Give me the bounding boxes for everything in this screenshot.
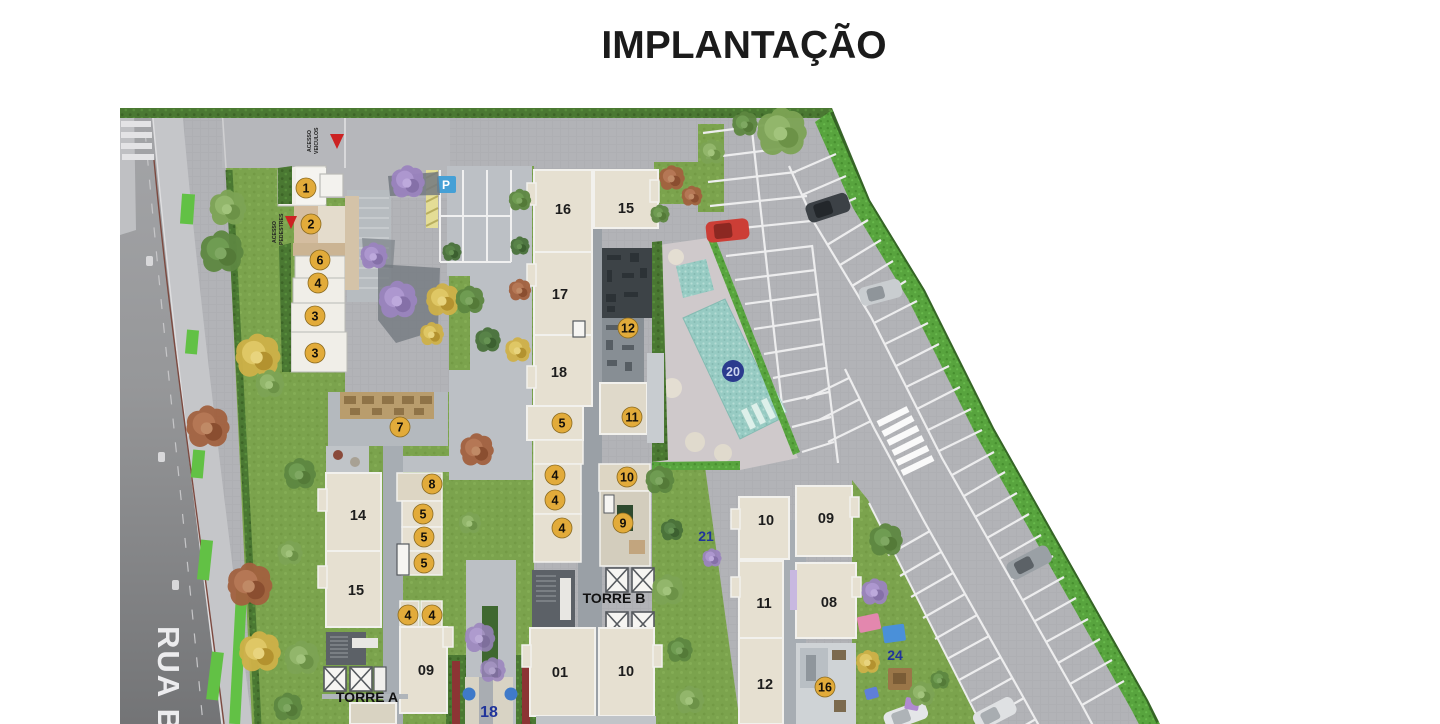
svg-text:6: 6 [317, 254, 324, 268]
svg-text:5: 5 [420, 508, 427, 522]
svg-text:15: 15 [348, 583, 364, 599]
svg-text:15: 15 [618, 201, 634, 217]
svg-text:TORRE B: TORRE B [583, 590, 646, 606]
svg-text:7: 7 [397, 421, 404, 435]
svg-text:4: 4 [552, 494, 559, 508]
svg-text:10: 10 [618, 664, 634, 680]
svg-text:09: 09 [818, 511, 834, 527]
svg-text:18: 18 [551, 365, 567, 381]
svg-text:20: 20 [726, 365, 740, 379]
svg-text:4: 4 [552, 469, 559, 483]
svg-text:10: 10 [620, 471, 634, 485]
svg-text:ACESSO: ACESSO [307, 130, 313, 152]
svg-text:16: 16 [818, 681, 832, 695]
svg-text:TORRE A: TORRE A [336, 689, 398, 705]
svg-text:P: P [442, 178, 450, 192]
svg-text:24: 24 [887, 647, 903, 663]
svg-text:16: 16 [555, 202, 571, 218]
svg-text:08: 08 [821, 595, 837, 611]
svg-text:10: 10 [758, 513, 774, 529]
svg-text:3: 3 [312, 347, 319, 361]
svg-text:18: 18 [480, 704, 498, 721]
svg-text:3: 3 [312, 310, 319, 324]
svg-text:2: 2 [308, 218, 315, 232]
svg-text:9: 9 [620, 517, 627, 531]
svg-text:11: 11 [756, 596, 771, 612]
svg-text:1: 1 [303, 182, 310, 196]
svg-text:IMPLANTAÇÃO: IMPLANTAÇÃO [601, 23, 886, 67]
svg-text:12: 12 [757, 677, 773, 693]
svg-text:14: 14 [350, 508, 366, 524]
svg-text:09: 09 [418, 663, 434, 679]
svg-text:12: 12 [621, 322, 635, 336]
svg-text:4: 4 [559, 522, 566, 536]
svg-text:4: 4 [429, 609, 436, 623]
svg-text:RUA B: RUA B [151, 626, 186, 724]
svg-text:5: 5 [559, 417, 566, 431]
svg-text:11: 11 [625, 411, 638, 425]
svg-text:VEICULOS: VEICULOS [314, 127, 320, 154]
svg-text:4: 4 [405, 609, 412, 623]
svg-text:8: 8 [429, 478, 436, 492]
svg-text:21: 21 [698, 528, 714, 544]
svg-text:5: 5 [421, 531, 428, 545]
svg-text:01: 01 [552, 665, 568, 681]
svg-text:PEDESTRES: PEDESTRES [279, 213, 285, 245]
svg-text:17: 17 [552, 287, 568, 303]
svg-text:4: 4 [315, 277, 322, 291]
svg-text:ACESSO: ACESSO [272, 221, 278, 243]
svg-text:5: 5 [421, 557, 428, 571]
